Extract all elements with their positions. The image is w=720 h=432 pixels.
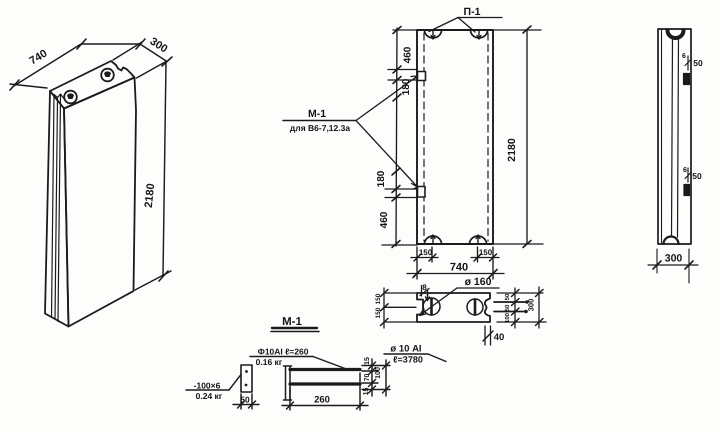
svg-text:ℓ=3780: ℓ=3780	[393, 355, 423, 365]
svg-text:300: 300	[527, 299, 536, 312]
svg-text:50: 50	[504, 304, 511, 311]
svg-text:50: 50	[692, 171, 702, 181]
svg-text:180: 180	[376, 170, 387, 187]
svg-text:0.16 кг: 0.16 кг	[256, 357, 283, 367]
svg-text:150: 150	[375, 293, 382, 304]
svg-text:50: 50	[240, 395, 250, 405]
svg-text:-100×6: -100×6	[194, 381, 221, 391]
svg-text:460: 460	[403, 46, 414, 63]
svg-text:0.24 кг: 0.24 кг	[196, 391, 223, 401]
svg-text:180: 180	[401, 78, 412, 95]
svg-text:ø 10 АI: ø 10 АI	[390, 344, 421, 355]
svg-text:260: 260	[314, 395, 330, 406]
svg-text:для В6-7,12.3а: для В6-7,12.3а	[290, 123, 350, 133]
svg-text:100: 100	[504, 312, 511, 323]
svg-text:50: 50	[693, 58, 703, 68]
svg-text:6: 6	[683, 167, 687, 174]
svg-text:2180: 2180	[506, 138, 518, 162]
svg-text:8: 8	[422, 283, 427, 292]
svg-text:300: 300	[665, 253, 683, 265]
svg-text:М-1: М-1	[282, 316, 302, 328]
svg-text:150: 150	[479, 248, 493, 257]
svg-text:Ф10АI ℓ=260: Ф10АI ℓ=260	[258, 347, 309, 357]
svg-text:150: 150	[419, 248, 433, 257]
svg-text:15: 15	[364, 357, 371, 365]
svg-text:150: 150	[375, 307, 382, 318]
svg-text:40: 40	[494, 332, 505, 343]
svg-text:2180: 2180	[143, 183, 157, 209]
svg-text:15: 15	[363, 388, 370, 396]
svg-text:70: 70	[364, 374, 371, 382]
svg-text:П-1: П-1	[464, 6, 481, 18]
svg-text:740: 740	[450, 262, 468, 274]
svg-text:460: 460	[379, 211, 390, 228]
svg-text:50: 50	[504, 293, 511, 300]
svg-text:6: 6	[682, 53, 686, 60]
svg-text:100: 100	[375, 367, 382, 379]
svg-text:ø 160: ø 160	[465, 276, 492, 288]
svg-text:М-1: М-1	[308, 108, 326, 120]
